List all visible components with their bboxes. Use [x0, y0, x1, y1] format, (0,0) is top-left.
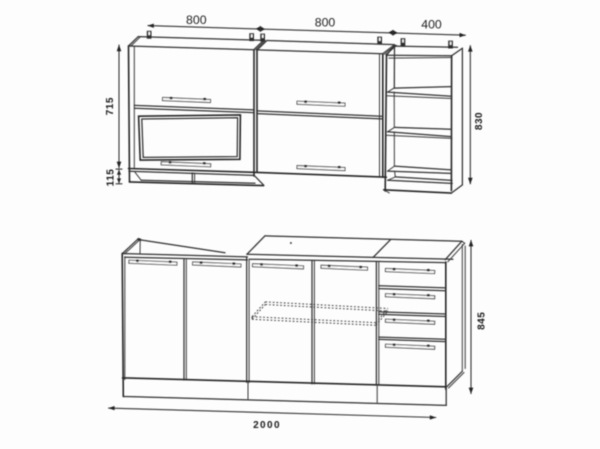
svg-text:800: 800 — [315, 16, 336, 30]
svg-text:845: 845 — [477, 312, 488, 330]
svg-text:115: 115 — [106, 169, 117, 187]
svg-text:800: 800 — [186, 13, 207, 27]
svg-text:400: 400 — [421, 17, 442, 31]
svg-text:2000: 2000 — [253, 420, 281, 431]
svg-text:715: 715 — [105, 97, 116, 115]
svg-text:830: 830 — [474, 112, 485, 130]
